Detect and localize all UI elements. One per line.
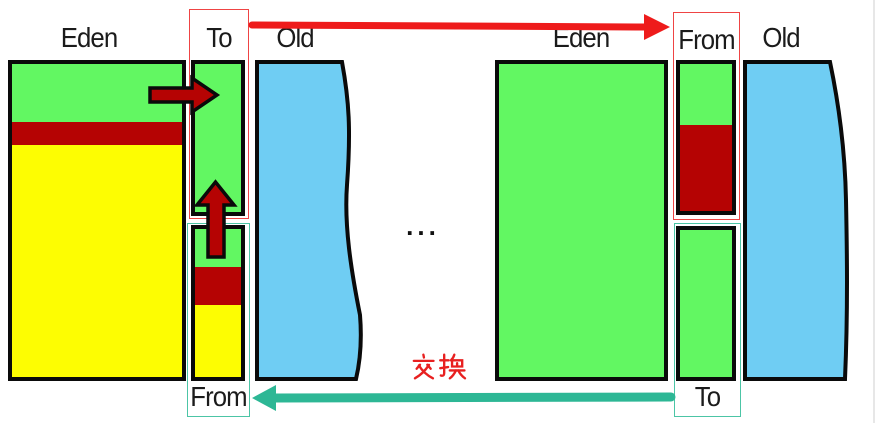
old-left-shape xyxy=(257,62,361,379)
swap-label-glyphs xyxy=(414,355,465,379)
old-right-shape xyxy=(745,62,847,379)
from-right-green-segment xyxy=(680,64,732,125)
eden-left-label: Eden xyxy=(43,24,135,52)
survivor-to-right-box xyxy=(676,226,736,381)
eden-right-label: Eden xyxy=(535,24,627,52)
from-right-label: From xyxy=(676,26,738,54)
survivor-from-left-box xyxy=(191,225,245,381)
eden-left-red-segment xyxy=(12,122,182,145)
survivor-from-right-box xyxy=(676,60,736,215)
old-left-label: Old xyxy=(258,24,332,52)
gc-survivor-swap-diagram: Eden To Old Eden From Old From To ... 交换 xyxy=(0,0,879,423)
survivor-to-left-box xyxy=(191,60,245,216)
eden-left-box xyxy=(8,60,186,381)
page-edge-line xyxy=(873,0,875,423)
eden-left-yellow-segment xyxy=(12,145,182,377)
to-left-label: To xyxy=(191,24,246,52)
to-right-bottom-label: To xyxy=(677,383,739,411)
swap-from-to-arrow-icon xyxy=(252,385,671,411)
from-right-red-segment xyxy=(680,125,732,211)
ellipsis-separator: ... xyxy=(398,213,448,239)
from-left-green-segment xyxy=(195,229,241,267)
eden-left-green-segment xyxy=(12,64,182,122)
from-left-bottom-label: From xyxy=(190,383,248,411)
old-right-label: Old xyxy=(744,24,818,52)
from-left-yellow-segment xyxy=(195,305,241,377)
from-left-red-segment xyxy=(195,267,241,305)
eden-right-box xyxy=(495,60,668,381)
